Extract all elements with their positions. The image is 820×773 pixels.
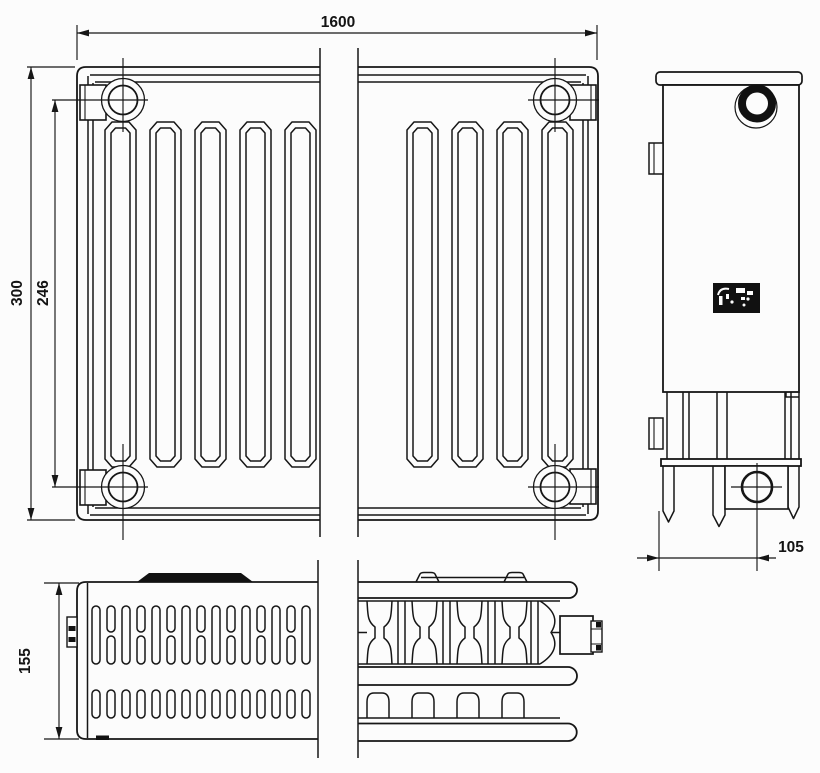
grille-clip-tab <box>137 573 253 582</box>
dim-label-depth: 155 <box>17 648 34 674</box>
grille-bracket <box>67 617 77 647</box>
side-brand-label <box>713 283 760 313</box>
section-fins-lower <box>358 693 560 718</box>
radiator-technical-drawing: 1600 300 246 <box>0 0 820 773</box>
grille-bottom-clip <box>96 736 109 741</box>
dim-port-offset: 105 <box>637 511 804 571</box>
dim-label-front-width: 1600 <box>321 14 355 31</box>
drawing-canvas: 1600 300 246 <box>0 0 820 773</box>
top-grille-view <box>67 560 358 758</box>
front-view <box>52 48 599 540</box>
side-bracket-top <box>649 143 663 174</box>
dim-depth: 155 <box>17 583 79 739</box>
bottom-break-lines <box>318 560 358 758</box>
front-outline-right <box>358 67 598 520</box>
dim-front-width: 1600 <box>77 14 597 60</box>
side-body <box>663 85 799 392</box>
section-clip-strip <box>416 573 527 583</box>
side-bracket-bottom <box>649 418 663 449</box>
section-port-block <box>560 616 602 654</box>
front-panel-edges <box>88 75 588 515</box>
grille-slots-bottom <box>92 690 310 718</box>
section-view <box>358 573 602 742</box>
section-panel-top <box>358 582 577 598</box>
section-fins-upper <box>358 601 562 664</box>
dim-label-port-spacing: 246 <box>35 280 52 306</box>
grille-slots-top <box>92 606 310 664</box>
section-panel-bottom <box>358 724 577 742</box>
dim-label-port-offset: 105 <box>778 539 804 556</box>
section-panel-middle <box>358 667 577 685</box>
side-view <box>649 72 802 571</box>
front-break-lines <box>320 48 358 537</box>
front-outline-left <box>77 67 320 520</box>
dim-port-spacing: 246 <box>35 100 58 487</box>
side-top-cap <box>656 72 802 85</box>
front-grooves <box>105 122 573 467</box>
dim-label-front-height: 300 <box>9 280 26 306</box>
